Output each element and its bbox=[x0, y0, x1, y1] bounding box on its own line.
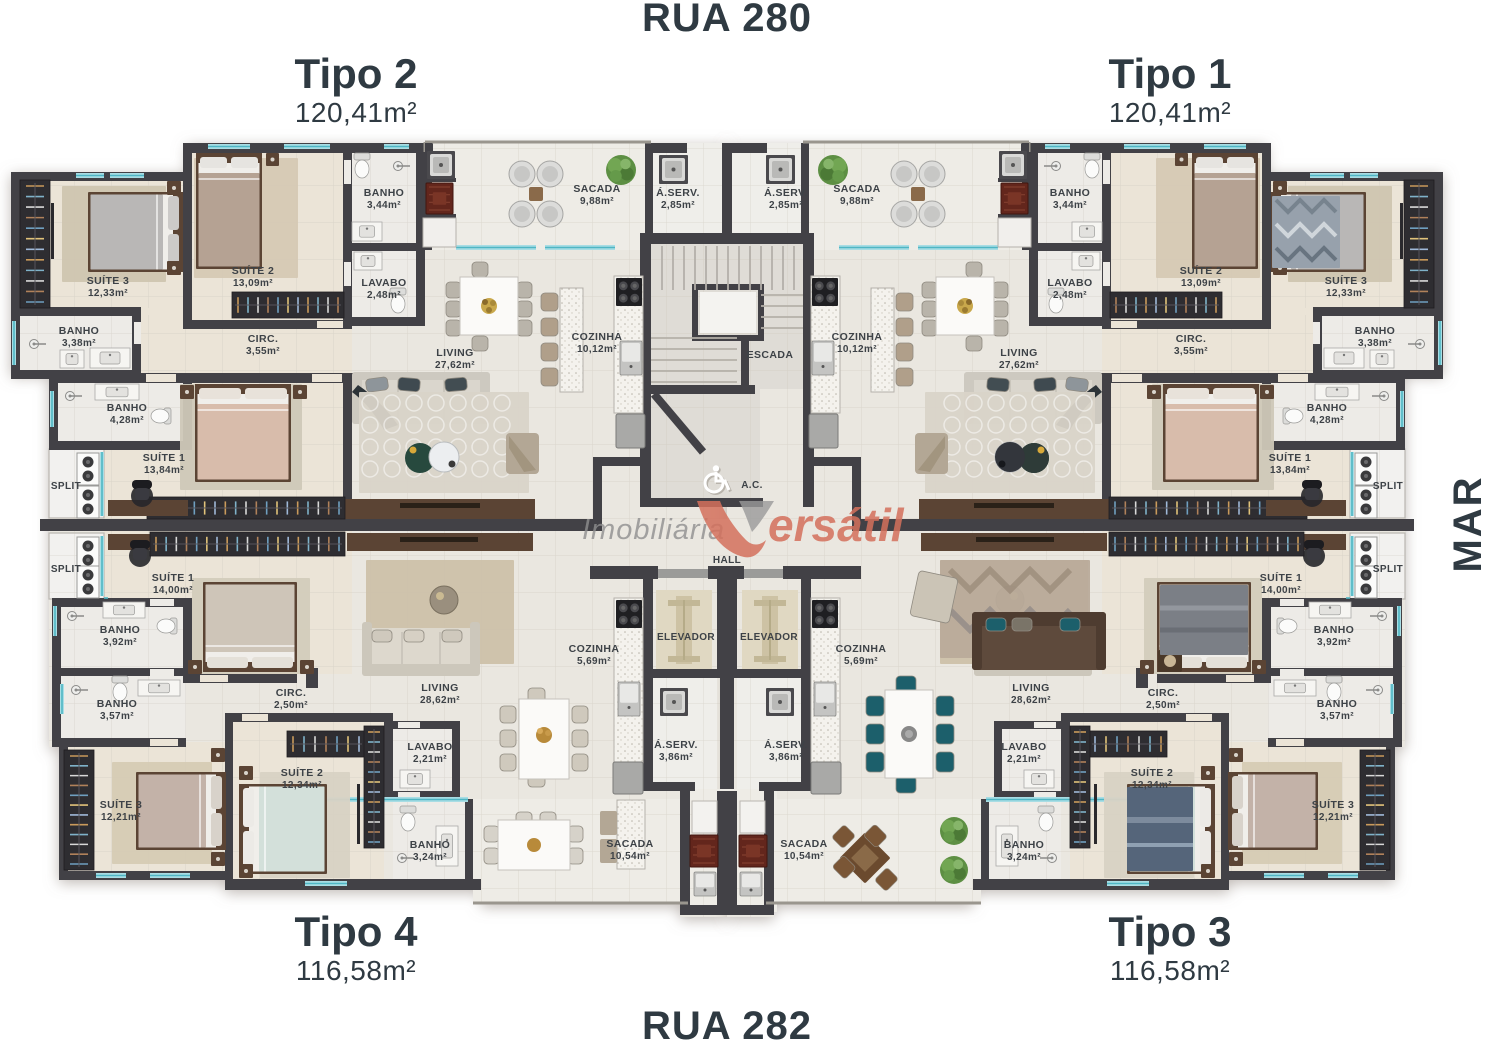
svg-text:10,12m²: 10,12m² bbox=[577, 344, 617, 355]
svg-text:3,92m²: 3,92m² bbox=[103, 637, 137, 648]
svg-text:LAVABO: LAVABO bbox=[361, 277, 406, 289]
svg-text:116,58m²: 116,58m² bbox=[1110, 955, 1230, 986]
svg-text:27,62m²: 27,62m² bbox=[435, 360, 475, 371]
svg-text:2,85m²: 2,85m² bbox=[661, 200, 695, 211]
svg-text:BANHO: BANHO bbox=[1314, 624, 1355, 636]
svg-text:13,84m²: 13,84m² bbox=[144, 465, 184, 476]
svg-text:ESCADA: ESCADA bbox=[747, 349, 794, 361]
svg-text:2,50m²: 2,50m² bbox=[1146, 700, 1180, 711]
svg-text:LAVABO: LAVABO bbox=[407, 741, 452, 753]
svg-text:SUÍTE 1: SUÍTE 1 bbox=[1269, 451, 1311, 464]
svg-text:9,88m²: 9,88m² bbox=[580, 196, 614, 207]
svg-text:3,38m²: 3,38m² bbox=[62, 338, 96, 349]
svg-text:12,21m²: 12,21m² bbox=[1313, 812, 1353, 823]
svg-text:12,33m²: 12,33m² bbox=[1326, 288, 1366, 299]
svg-text:SPLIT: SPLIT bbox=[1373, 564, 1403, 575]
svg-text:Tipo 4: Tipo 4 bbox=[295, 908, 419, 955]
svg-text:3,38m²: 3,38m² bbox=[1358, 338, 1392, 349]
svg-text:BANHO: BANHO bbox=[107, 402, 148, 414]
svg-text:SACADA: SACADA bbox=[573, 183, 620, 195]
svg-text:SUÍTE 2: SUÍTE 2 bbox=[232, 264, 274, 277]
svg-text:4,28m²: 4,28m² bbox=[110, 415, 144, 426]
svg-text:10,54m²: 10,54m² bbox=[784, 851, 824, 862]
svg-text:SPLIT: SPLIT bbox=[51, 481, 81, 492]
svg-text:10,12m²: 10,12m² bbox=[837, 344, 877, 355]
svg-text:BANHO: BANHO bbox=[1355, 325, 1396, 337]
svg-text:14,00m²: 14,00m² bbox=[153, 585, 193, 596]
svg-text:ELEVADOR: ELEVADOR bbox=[740, 632, 798, 643]
svg-text:4,28m²: 4,28m² bbox=[1310, 415, 1344, 426]
svg-text:116,58m²: 116,58m² bbox=[296, 955, 416, 986]
svg-text:13,09m²: 13,09m² bbox=[233, 278, 273, 289]
svg-text:LAVABO: LAVABO bbox=[1047, 277, 1092, 289]
svg-text:SPLIT: SPLIT bbox=[1373, 481, 1403, 492]
svg-text:13,09m²: 13,09m² bbox=[1181, 278, 1221, 289]
svg-text:Tipo 1: Tipo 1 bbox=[1109, 50, 1232, 97]
svg-text:SUÍTE 3: SUÍTE 3 bbox=[100, 798, 142, 811]
svg-text:2,21m²: 2,21m² bbox=[413, 754, 447, 765]
svg-text:3,44m²: 3,44m² bbox=[367, 200, 401, 211]
svg-text:3,86m²: 3,86m² bbox=[769, 752, 803, 763]
svg-text:BANHO: BANHO bbox=[410, 839, 451, 851]
svg-text:BANHO: BANHO bbox=[1004, 839, 1045, 851]
svg-text:3,57m²: 3,57m² bbox=[100, 711, 134, 722]
svg-text:2,48m²: 2,48m² bbox=[1053, 290, 1087, 301]
svg-text:SUÍTE 3: SUÍTE 3 bbox=[1325, 274, 1367, 287]
svg-text:Á.SERV.: Á.SERV. bbox=[656, 186, 700, 199]
svg-text:COZINHA: COZINHA bbox=[572, 331, 623, 343]
svg-text:RUA 282: RUA 282 bbox=[642, 1004, 812, 1048]
svg-text:28,62m²: 28,62m² bbox=[420, 695, 460, 706]
svg-text:28,62m²: 28,62m² bbox=[1011, 695, 1051, 706]
svg-text:RUA 280: RUA 280 bbox=[642, 0, 812, 40]
svg-text:14,00m²: 14,00m² bbox=[1261, 585, 1301, 596]
svg-text:CIRC.: CIRC. bbox=[248, 333, 279, 345]
svg-text:SUÍTE 2: SUÍTE 2 bbox=[281, 766, 323, 779]
svg-text:BANHO: BANHO bbox=[1307, 402, 1348, 414]
svg-text:12,33m²: 12,33m² bbox=[88, 288, 128, 299]
svg-text:2,48m²: 2,48m² bbox=[367, 290, 401, 301]
svg-text:COZINHA: COZINHA bbox=[836, 643, 887, 655]
svg-text:9,88m²: 9,88m² bbox=[840, 196, 874, 207]
svg-text:HALL: HALL bbox=[713, 555, 741, 566]
svg-text:LIVING: LIVING bbox=[1000, 347, 1037, 359]
svg-text:Á.SERV.: Á.SERV. bbox=[764, 186, 808, 199]
svg-text:SUÍTE 3: SUÍTE 3 bbox=[1312, 798, 1354, 811]
svg-text:SUÍTE 2: SUÍTE 2 bbox=[1131, 766, 1173, 779]
svg-text:3,86m²: 3,86m² bbox=[659, 752, 693, 763]
svg-text:SPLIT: SPLIT bbox=[51, 564, 81, 575]
svg-text:12,34m²: 12,34m² bbox=[282, 780, 322, 791]
svg-text:LIVING: LIVING bbox=[1012, 682, 1049, 694]
svg-text:12,34m²: 12,34m² bbox=[1132, 780, 1172, 791]
svg-text:SACADA: SACADA bbox=[833, 183, 880, 195]
svg-text:3,24m²: 3,24m² bbox=[413, 852, 447, 863]
svg-text:ersátil: ersátil bbox=[768, 499, 905, 551]
svg-text:Imobiliária: Imobiliária bbox=[582, 514, 725, 546]
svg-text:COZINHA: COZINHA bbox=[569, 643, 620, 655]
svg-text:SUÍTE 1: SUÍTE 1 bbox=[152, 571, 194, 584]
svg-text:BANHO: BANHO bbox=[1050, 187, 1091, 199]
svg-text:SUÍTE 3: SUÍTE 3 bbox=[87, 274, 129, 287]
svg-text:SACADA: SACADA bbox=[606, 838, 653, 850]
svg-text:MAR: MAR bbox=[1446, 475, 1485, 572]
svg-text:COZINHA: COZINHA bbox=[832, 331, 883, 343]
svg-text:3,92m²: 3,92m² bbox=[1317, 637, 1351, 648]
svg-text:CIRC.: CIRC. bbox=[276, 687, 307, 699]
svg-text:SUÍTE 1: SUÍTE 1 bbox=[143, 451, 185, 464]
svg-text:BANHO: BANHO bbox=[97, 698, 138, 710]
svg-text:BANHO: BANHO bbox=[1317, 698, 1358, 710]
svg-text:3,55m²: 3,55m² bbox=[246, 346, 280, 357]
svg-text:LAVABO: LAVABO bbox=[1001, 741, 1046, 753]
svg-text:27,62m²: 27,62m² bbox=[999, 360, 1039, 371]
svg-text:3,24m²: 3,24m² bbox=[1007, 852, 1041, 863]
svg-text:BANHO: BANHO bbox=[100, 624, 141, 636]
svg-text:A.C.: A.C. bbox=[741, 480, 763, 491]
svg-text:Tipo 2: Tipo 2 bbox=[295, 50, 418, 97]
svg-text:3,44m²: 3,44m² bbox=[1053, 200, 1087, 211]
svg-text:Tipo 3: Tipo 3 bbox=[1109, 908, 1232, 955]
svg-text:120,41m²: 120,41m² bbox=[1109, 97, 1231, 128]
svg-text:13,84m²: 13,84m² bbox=[1270, 465, 1310, 476]
svg-text:Á.SERV.: Á.SERV. bbox=[764, 738, 808, 751]
svg-text:SUÍTE 1: SUÍTE 1 bbox=[1260, 571, 1302, 584]
svg-text:2,50m²: 2,50m² bbox=[274, 700, 308, 711]
svg-text:BANHO: BANHO bbox=[59, 325, 100, 337]
svg-text:ELEVADOR: ELEVADOR bbox=[657, 632, 715, 643]
svg-text:2,85m²: 2,85m² bbox=[769, 200, 803, 211]
svg-text:5,69m²: 5,69m² bbox=[577, 656, 611, 667]
svg-text:SACADA: SACADA bbox=[780, 838, 827, 850]
svg-text:10,54m²: 10,54m² bbox=[610, 851, 650, 862]
svg-text:BANHO: BANHO bbox=[364, 187, 405, 199]
svg-text:CIRC.: CIRC. bbox=[1148, 687, 1179, 699]
svg-text:Á.SERV.: Á.SERV. bbox=[654, 738, 698, 751]
svg-text:SUÍTE 2: SUÍTE 2 bbox=[1180, 264, 1222, 277]
svg-text:3,57m²: 3,57m² bbox=[1320, 711, 1354, 722]
svg-text:CIRC.: CIRC. bbox=[1176, 333, 1207, 345]
svg-text:5,69m²: 5,69m² bbox=[844, 656, 878, 667]
svg-text:120,41m²: 120,41m² bbox=[295, 97, 417, 128]
svg-text:12,21m²: 12,21m² bbox=[101, 812, 141, 823]
svg-text:LIVING: LIVING bbox=[436, 347, 473, 359]
svg-text:3,55m²: 3,55m² bbox=[1174, 346, 1208, 357]
svg-text:2,21m²: 2,21m² bbox=[1007, 754, 1041, 765]
svg-text:LIVING: LIVING bbox=[421, 682, 458, 694]
